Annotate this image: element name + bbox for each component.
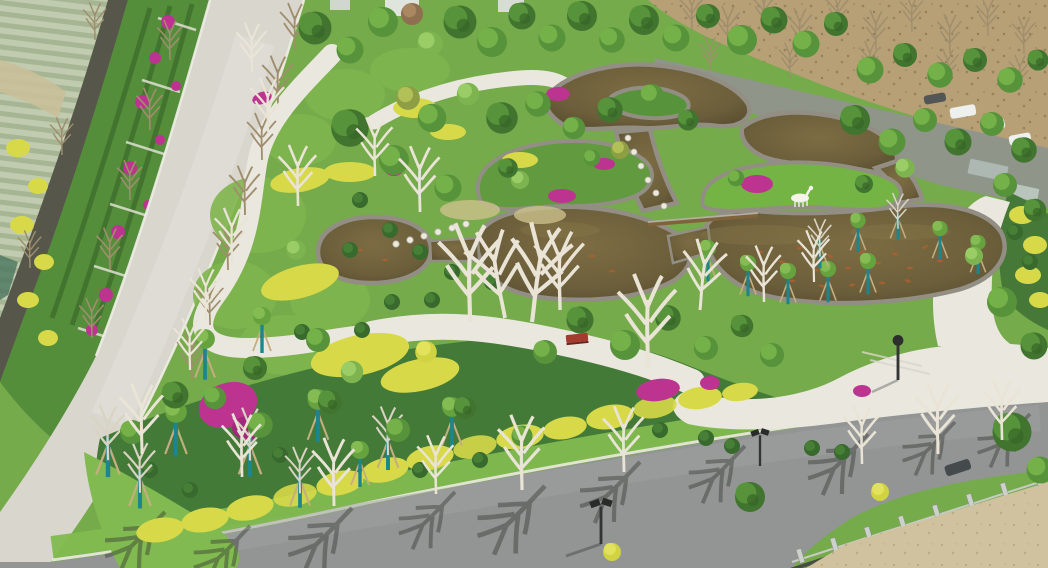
photo-tint bbox=[0, 0, 1048, 568]
aerial-park-photo bbox=[0, 0, 1048, 568]
